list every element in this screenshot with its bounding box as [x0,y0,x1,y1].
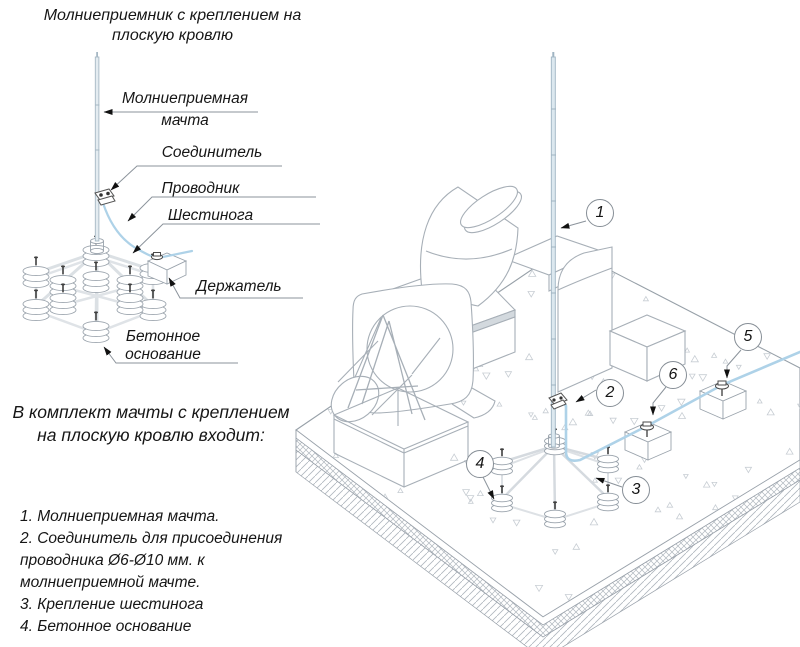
detail-mast [95,52,100,241]
label-concrete-base: Бетонное основание [98,328,228,364]
label-conductor: Проводник [148,179,253,198]
kit-item-4: 4. Бетонное основание [20,616,316,638]
callout-3: 3 [622,476,650,504]
diagram-page: Молниеприемник с креплением на плоскую к… [0,0,800,647]
label-mast: Молниеприемная мачта [110,90,260,130]
label-hexapod: Шестинога [158,206,263,225]
callout-6: 6 [659,361,687,389]
kit-heading: В комплект мачты с креплением на плоскую… [0,401,302,447]
detail-holder-clamp [152,253,163,260]
kit-item-1: 1. Молниеприемная мачта. [20,506,316,528]
label-connector: Соединитель [138,143,286,162]
kit-item-2: 2. Соединитель для присоединения проводн… [20,528,316,594]
callout-5: 5 [734,323,762,351]
label-holder: Держатель [185,277,293,296]
callout-2: 2 [596,379,624,407]
callout-1: 1 [586,199,614,227]
page-title-line2: плоскую кровлю [25,26,320,46]
page-title: Молниеприемник с креплением на плоскую к… [25,6,320,46]
lightning-mast [551,52,556,447]
kit-list: 1. Молниеприемная мачта. 2. Соединитель … [20,506,316,638]
page-title-line1: Молниеприемник с креплением на [25,6,320,26]
callout-4: 4 [466,450,494,478]
kit-item-3: 3. Крепление шестинога [20,594,316,616]
